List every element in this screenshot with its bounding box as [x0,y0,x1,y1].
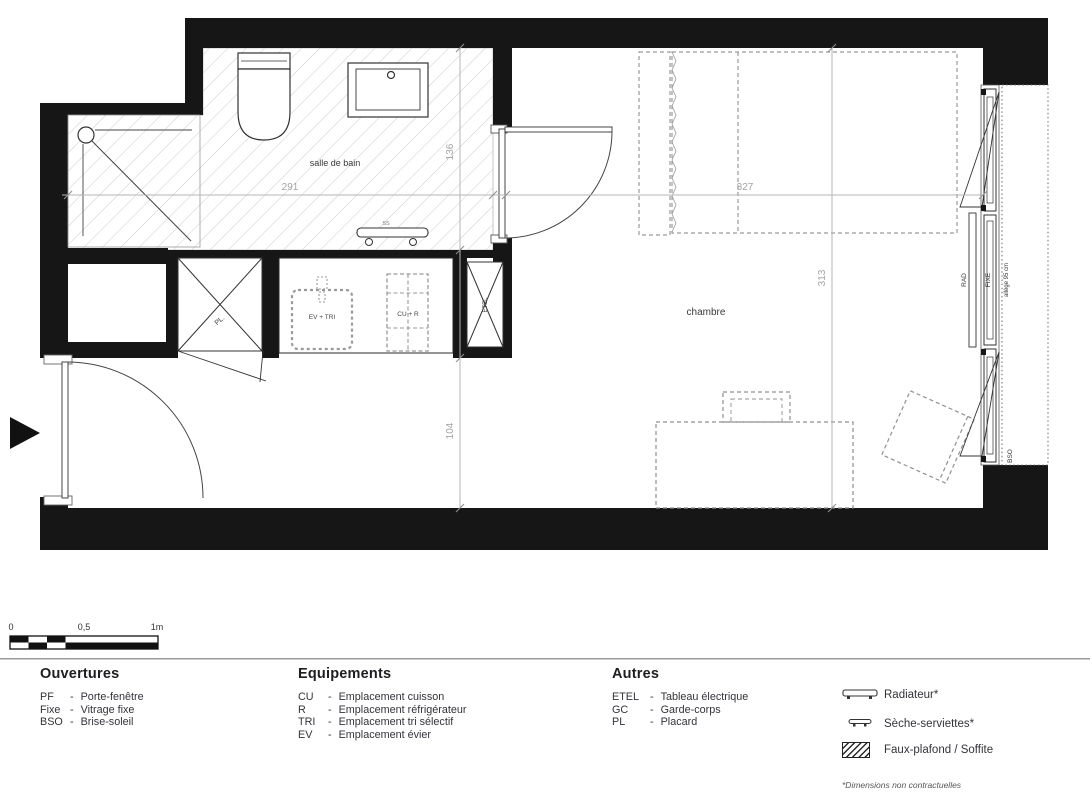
washbasin [348,63,428,117]
legend-title-autres: Autres [612,666,748,682]
legend-item: ETEL - Tableau électrique [612,691,748,704]
casement-window-bottom [960,349,999,462]
room-label-bathroom: salle de bain [310,158,361,168]
scale-tick-0: 0 [8,622,13,632]
legend-section-ouvertures: Ouvertures PF - Porte-fenêtre Fixe - Vit… [40,666,144,729]
legend-item: Fixe - Vitrage fixe [40,704,144,717]
entry-door [44,355,203,505]
room-label-bedroom: chambre [687,307,726,318]
casement-window-top [960,89,999,211]
label-electrical-panel: ETEL [483,297,489,313]
dim-bathroom-width: 291 [282,182,299,193]
scale-bar: 0 0,5 1m [8,622,163,649]
legend-symbol-faux-plafond: Faux-plafond / Soffite [842,742,993,758]
dimensions-footnote: *Dimensions non contractuelles [842,780,961,790]
legend-item: PF - Porte-fenêtre [40,691,144,704]
dim-bedroom-width: 327 [737,182,754,193]
legend-item: EV - Emplacement évier [298,729,466,742]
legend-item: GC - Garde-corps [612,704,748,717]
dim-hall-width: 104 [445,422,456,439]
toilet [238,53,290,140]
label-fixed-glazing: FIXE [985,272,992,287]
label-cooking-fridge: CU + R [397,311,419,318]
floor-plan-page: salle de bain chambre 291 327 136 104 31… [0,0,1090,800]
label-radiator: RAD [961,273,968,287]
legend-symbol-radiateur: Radiateur* [842,689,938,701]
label-sink-sorting: EV + TRI [309,314,336,321]
kitchen-counter [279,258,453,353]
legend-title-ouvertures: Ouvertures [40,666,144,682]
entry-arrow-icon [10,417,40,449]
label-towel-dryer: SS [382,221,390,227]
scale-tick-mid: 0,5 [78,622,91,632]
legend-symbol-seche-serviettes: Sèche-serviettes* [842,718,974,730]
legend-section-equipements: Equipements CU - Emplacement cuisson R -… [298,666,466,741]
chair [882,391,974,483]
legend-item: BSO - Brise-soleil [40,716,144,729]
legend-item: PL - Placard [612,716,748,729]
ceiling-hatch-legend-icon [842,742,882,758]
dim-bathroom-height: 136 [445,143,456,160]
legend-divider [0,658,1090,660]
legend-item: CU - Emplacement cuisson [298,691,466,704]
legend-item: R - Emplacement réfrigérateur [298,704,466,717]
scale-tick-end: 1m [151,622,164,632]
floor-plan-drawing: salle de bain chambre 291 327 136 104 31… [0,0,1090,662]
label-sun-screen: BSO [1007,449,1014,463]
bathroom-door [491,125,612,243]
dim-bedroom-height: 313 [817,269,828,286]
legend-section-autres: Autres ETEL - Tableau électrique GC - Ga… [612,666,748,729]
legend-title-equipements: Equipements [298,666,466,682]
label-window-sill: allège 95 cm [1004,263,1010,297]
desk [656,392,853,508]
radiator-symbol [969,213,976,347]
legend-item: TRI - Emplacement tri sélectif [298,716,466,729]
bed [639,52,957,235]
